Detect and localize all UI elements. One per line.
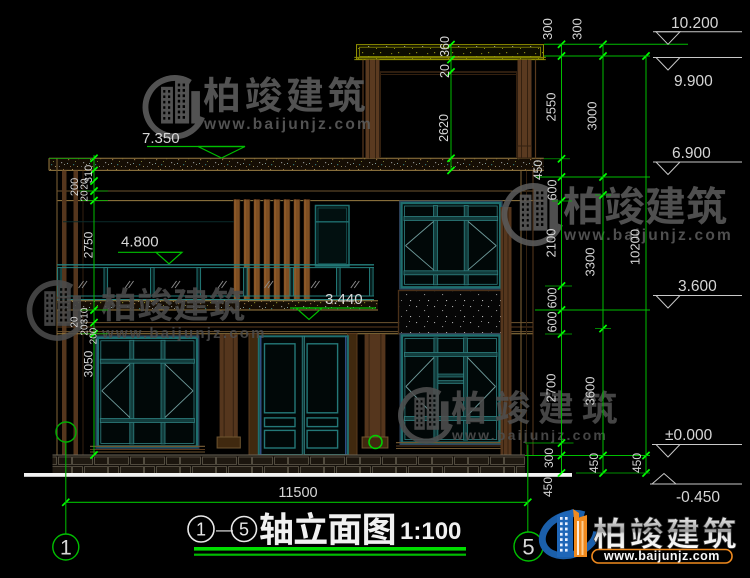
svg-text:2700: 2700 [544,374,559,403]
svg-text:±0.000: ±0.000 [665,427,713,444]
svg-text:2550: 2550 [544,93,559,122]
svg-text:450: 450 [541,477,555,497]
svg-text:20: 20 [80,178,91,190]
svg-text:www.baijunjz.com: www.baijunjz.com [203,116,373,133]
svg-text:www.baijunjz.com: www.baijunjz.com [603,549,720,563]
svg-text:www.baijunjz.com: www.baijunjz.com [563,227,733,244]
svg-text:3.600: 3.600 [678,278,717,295]
svg-text:450: 450 [531,160,545,180]
svg-text:5: 5 [522,535,534,560]
svg-text:300: 300 [540,18,555,40]
svg-text:450: 450 [630,453,644,473]
svg-text:310: 310 [80,307,91,324]
svg-text:20: 20 [80,190,91,202]
svg-text:10200: 10200 [628,229,643,265]
svg-text:360: 360 [438,36,452,57]
svg-text:9.900: 9.900 [674,73,713,90]
svg-text:2100: 2100 [544,229,559,258]
svg-text:600: 600 [545,312,559,333]
svg-text:600: 600 [545,180,559,201]
svg-text:450: 450 [587,453,601,473]
svg-text:—: — [216,520,233,539]
svg-text:300: 300 [570,18,585,40]
svg-text:www.baijunjz.com: www.baijunjz.com [101,325,267,342]
svg-text:11500: 11500 [278,485,317,501]
svg-text:4.800: 4.800 [121,234,159,251]
svg-text:3300: 3300 [583,248,598,277]
svg-text:3600: 3600 [583,377,598,406]
svg-text:7.350: 7.350 [142,130,180,147]
svg-text:300: 300 [542,448,556,468]
svg-text:2620: 2620 [437,114,451,142]
svg-text:600: 600 [545,288,559,309]
svg-text:3.440: 3.440 [325,291,363,308]
svg-text:200: 200 [89,327,100,344]
svg-text:www.baijunjz.com: www.baijunjz.com [451,427,608,443]
svg-text:-0.450: -0.450 [676,489,720,506]
svg-text:1: 1 [60,537,72,560]
svg-text:1: 1 [196,520,206,540]
svg-text:10.200: 10.200 [671,15,719,32]
svg-text:3000: 3000 [585,102,600,131]
svg-text:5: 5 [239,520,249,540]
svg-text:6.900: 6.900 [672,145,711,162]
svg-text:1:100: 1:100 [400,518,461,545]
svg-text:2750: 2750 [82,231,96,258]
svg-text:20: 20 [438,64,452,78]
svg-text:3050: 3050 [82,350,96,377]
